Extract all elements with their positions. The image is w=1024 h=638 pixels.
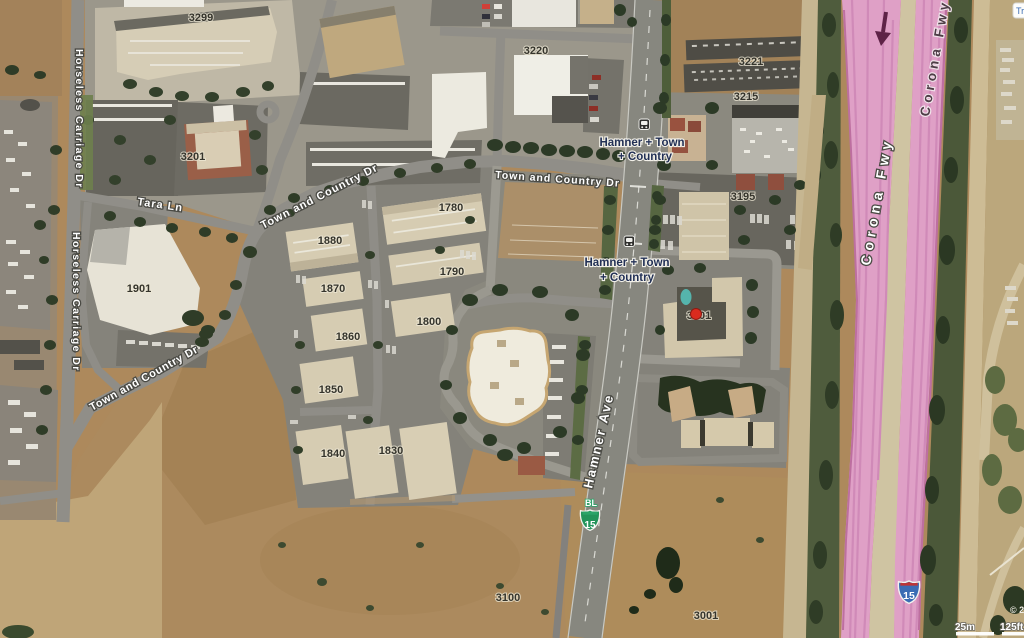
svg-text:3100: 3100 bbox=[496, 592, 520, 604]
svg-text:1880: 1880 bbox=[318, 235, 342, 247]
svg-text:3299: 3299 bbox=[189, 12, 213, 24]
svg-text:15: 15 bbox=[584, 520, 596, 531]
svg-text:1800: 1800 bbox=[417, 316, 441, 328]
svg-text:BL: BL bbox=[585, 498, 597, 508]
svg-text:3195: 3195 bbox=[731, 191, 755, 203]
svg-text:25m: 25m bbox=[955, 622, 975, 633]
svg-text:1860: 1860 bbox=[336, 331, 360, 343]
svg-text:1850: 1850 bbox=[319, 384, 343, 396]
svg-text:1901: 1901 bbox=[127, 283, 151, 295]
svg-text:1780: 1780 bbox=[439, 202, 463, 214]
svg-text:15: 15 bbox=[903, 590, 915, 602]
svg-text:Tr: Tr bbox=[1016, 6, 1024, 16]
svg-text:© 2: © 2 bbox=[1010, 605, 1024, 615]
svg-text:3001: 3001 bbox=[694, 610, 718, 622]
svg-text:125ft: 125ft bbox=[1000, 622, 1024, 633]
svg-text:1870: 1870 bbox=[321, 283, 345, 295]
svg-text:+ Country: + Country bbox=[618, 151, 673, 163]
svg-text:Hamner + Town: Hamner + Town bbox=[584, 257, 669, 269]
svg-text:3220: 3220 bbox=[524, 45, 548, 57]
svg-text:Horseless Carriage Dr: Horseless Carriage Dr bbox=[70, 232, 82, 372]
svg-text:1790: 1790 bbox=[440, 266, 464, 278]
svg-text:3221: 3221 bbox=[739, 56, 763, 68]
svg-text:3201: 3201 bbox=[181, 151, 205, 163]
svg-text:Horseless Carriage Dr: Horseless Carriage Dr bbox=[73, 49, 85, 189]
svg-text:1840: 1840 bbox=[321, 448, 345, 460]
svg-text:3215: 3215 bbox=[734, 91, 758, 103]
svg-text:Hamner + Town: Hamner + Town bbox=[599, 137, 684, 149]
svg-text:+ Country: + Country bbox=[600, 272, 655, 284]
svg-text:1830: 1830 bbox=[379, 445, 403, 457]
